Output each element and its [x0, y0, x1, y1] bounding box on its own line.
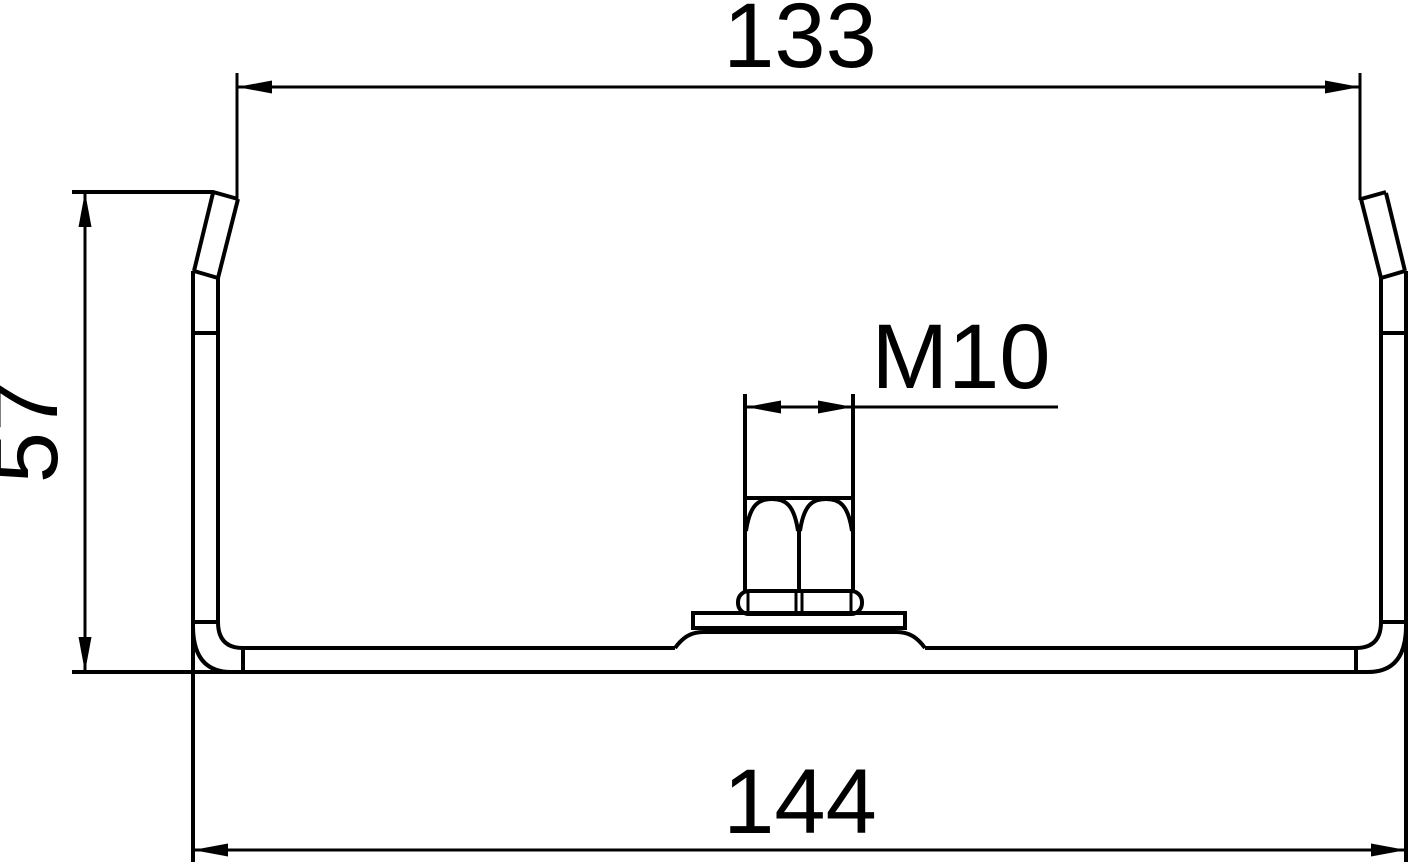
left-inner-corner-arc [218, 622, 243, 648]
nut-collar [738, 591, 862, 614]
nut-chamfer-arc-right [800, 499, 852, 531]
dim-57-arrow-top [79, 192, 92, 227]
left-lip-inner-edge [194, 193, 213, 271]
right-lip-inner-edge [1386, 193, 1405, 271]
dim-m10-arrow-right [818, 401, 853, 414]
dim-133-arrow-left [237, 81, 272, 94]
nut [738, 498, 862, 614]
left-lip-joint-line [194, 271, 218, 278]
dim-57-arrow-bottom [79, 637, 92, 672]
dim-57-label: 57 [0, 381, 77, 483]
left-outer-corner-arc [193, 626, 231, 672]
dim-m10-label: M10 [872, 306, 1051, 408]
right-outer-corner-arc [1368, 626, 1406, 672]
stud-assembly [693, 394, 905, 633]
left-lip-outer-edge [218, 199, 238, 278]
left-lip [72, 192, 238, 278]
right-lip-outer-edge [1361, 199, 1381, 278]
channel-floor [72, 632, 1368, 672]
dim-133-label: 133 [723, 0, 877, 87]
dimension-thread: M10 [746, 306, 1058, 414]
right-lip-top-edge [1361, 192, 1386, 199]
dim-144-label: 144 [723, 751, 877, 853]
dim-144-arrow-right [1371, 844, 1406, 857]
dimension-top-width: 133 [237, 0, 1360, 200]
dim-144-arrow-left [193, 844, 228, 857]
channel-profile-drawing: 133 57 144 M10 [0, 0, 1408, 864]
dim-m10-arrow-left [746, 401, 781, 414]
dimension-height: 57 [0, 192, 92, 672]
nut-chamfer-arc-left [746, 499, 798, 531]
floor-dome-boss [675, 632, 925, 648]
dim-133-arrow-right [1325, 81, 1360, 94]
dimension-bottom-width: 144 [193, 751, 1406, 857]
right-wall [1356, 271, 1406, 862]
left-wall [193, 271, 243, 862]
right-lip [1361, 192, 1405, 278]
technical-drawing-canvas: 133 57 144 M10 [0, 0, 1408, 864]
right-lip-joint-line [1381, 271, 1405, 278]
right-inner-corner-arc [1356, 622, 1381, 648]
